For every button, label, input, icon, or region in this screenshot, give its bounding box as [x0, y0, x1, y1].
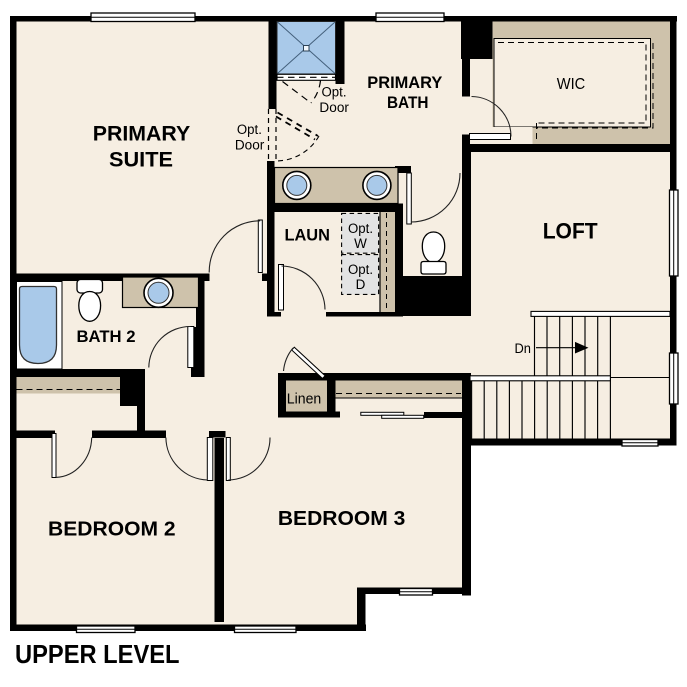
- svg-text:LOFT: LOFT: [543, 219, 599, 244]
- svg-text:BEDROOM 2: BEDROOM 2: [48, 517, 176, 540]
- svg-text:Opt.: Opt.: [348, 221, 373, 236]
- svg-text:PRIMARY: PRIMARY: [93, 121, 191, 145]
- svg-text:BATH 2: BATH 2: [77, 327, 136, 346]
- svg-text:SUITE: SUITE: [109, 148, 173, 172]
- svg-text:Dn: Dn: [514, 340, 531, 356]
- svg-text:LAUN: LAUN: [284, 226, 330, 245]
- svg-text:Door: Door: [319, 100, 349, 115]
- svg-text:D: D: [356, 277, 366, 292]
- svg-text:Opt.: Opt.: [322, 85, 347, 100]
- svg-text:W: W: [354, 236, 367, 251]
- svg-text:WIC: WIC: [557, 76, 586, 93]
- svg-text:Door: Door: [235, 138, 265, 153]
- svg-text:BEDROOM 3: BEDROOM 3: [278, 507, 406, 530]
- svg-text:PRIMARY: PRIMARY: [367, 74, 442, 92]
- svg-text:Opt.: Opt.: [237, 122, 262, 137]
- svg-text:UPPER LEVEL: UPPER LEVEL: [15, 639, 180, 669]
- svg-text:Linen: Linen: [287, 391, 322, 408]
- svg-text:Opt.: Opt.: [348, 262, 373, 277]
- svg-text:BATH: BATH: [387, 94, 429, 112]
